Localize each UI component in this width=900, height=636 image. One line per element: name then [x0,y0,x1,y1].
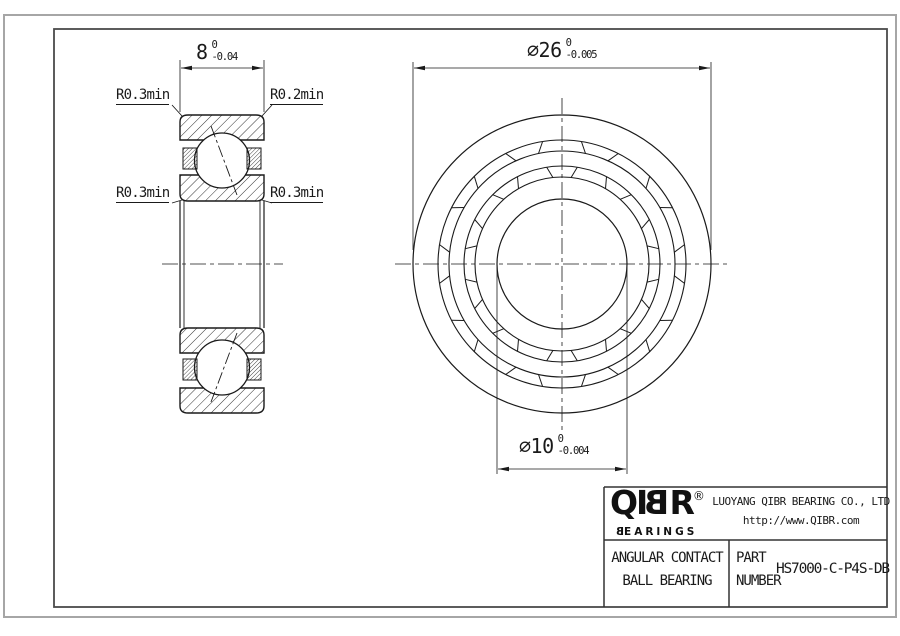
arrowhead [252,66,263,70]
outer-diameter-value: ∅26 [527,40,562,60]
bore-diameter-tolerance: 0 -0.004 [558,433,589,457]
cage-pocket-side [493,195,504,200]
cage-pocket-side [674,276,684,284]
company-website: http://www.QIBR.com [711,514,891,527]
part-label-line1: PART [736,550,766,566]
tolerance-lower: -0.04 [212,51,238,63]
company-name: LUOYANG QIBR BEARING CO., LTD [711,495,891,508]
cage-section [183,148,197,169]
cage-pocket-side [646,176,650,188]
cage-pocket-side [547,167,553,177]
cage-pocket-side [474,340,478,352]
width-dimension: 8 0 -0.04 [196,42,237,63]
cage-pocket-side [539,375,543,387]
cage-pocket-side [571,167,577,177]
cage-pocket-side [606,339,607,351]
cage-pocket-side [440,245,450,253]
cage-pocket-side [608,367,618,374]
cage-section [183,359,197,380]
cage-pocket-side [646,340,650,352]
leader-line [172,105,182,116]
leader-line [262,105,272,116]
cage-pocket-side [493,329,504,334]
cage-pocket-side [465,246,477,249]
cage-pocket-side [606,177,607,189]
cage-pocket-side [506,154,516,161]
cage-pocket-side [674,245,684,253]
arrowhead [699,66,710,70]
drawing-sheet: 8 0 -0.04 R0.3min R0.2min R0.3min R0.3mi… [0,0,900,636]
logo-subtext: BEARINGS [613,526,697,538]
front-view [395,62,730,474]
cage-pocket-side [642,299,650,308]
cage-pocket-side [581,375,585,387]
part-label-line2: NUMBER [736,573,781,589]
cage-pocket-side [440,276,450,284]
cage-pocket-side [620,195,631,200]
cage-pocket-side [465,279,477,282]
ball-upper [195,133,250,188]
cage-pocket-side [547,351,553,361]
product-name-line1: ANGULAR CONTACT [606,550,728,566]
tolerance-lower: -0.004 [558,445,589,457]
part-number: HS7000-C-P4S-DB [776,561,889,577]
cage-section [247,148,261,169]
fillet-callout-top-left: R0.3min [116,88,169,105]
cage-pocket-side [571,351,577,361]
arrowhead [181,66,192,70]
cage-pocket-side [647,246,659,249]
cage-pocket-side [642,220,650,229]
tolerance-lower: -0.005 [566,49,597,61]
outer-diameter-tolerance: 0 -0.005 [566,37,597,61]
outer-diameter-dimension: ∅26 0 -0.005 [527,40,596,61]
cage-pocket-side [581,142,585,154]
cage-pocket-side [474,176,478,188]
cage-pocket-side [506,367,516,374]
cage-pocket-side [518,339,519,351]
tolerance-upper: 0 [558,433,589,445]
cage-pocket-side [475,299,483,308]
bore-diameter-dimension: ∅10 0 -0.004 [519,436,588,457]
section-view [162,60,283,413]
tolerance-upper: 0 [566,37,597,49]
arrowhead [615,467,626,471]
cage-pocket-side [647,279,659,282]
cage-pocket-side [539,142,543,154]
arrowhead [498,467,509,471]
arrowhead [414,66,425,70]
bore-diameter-value: ∅10 [519,436,554,456]
registered-trademark-icon: ® [693,489,705,503]
width-dimension-tolerance: 0 -0.04 [212,39,238,63]
product-name-line2: BALL BEARING [606,573,728,589]
fillet-callout-bottom-right: R0.3min [270,186,323,203]
cage-pocket-side [608,154,618,161]
cage-pocket-side [518,177,519,189]
company-logo: QIBR® [610,486,705,519]
cage-section [247,359,261,380]
tolerance-upper: 0 [212,39,238,51]
cage-pocket-side [475,220,483,229]
fillet-callout-top-right: R0.2min [270,88,323,105]
logo-text: QIBR [610,483,693,522]
width-dimension-value: 8 [196,42,208,62]
ball-lower [195,340,250,395]
fillet-callout-bottom-left: R0.3min [116,186,169,203]
cage-pocket-side [620,329,631,334]
